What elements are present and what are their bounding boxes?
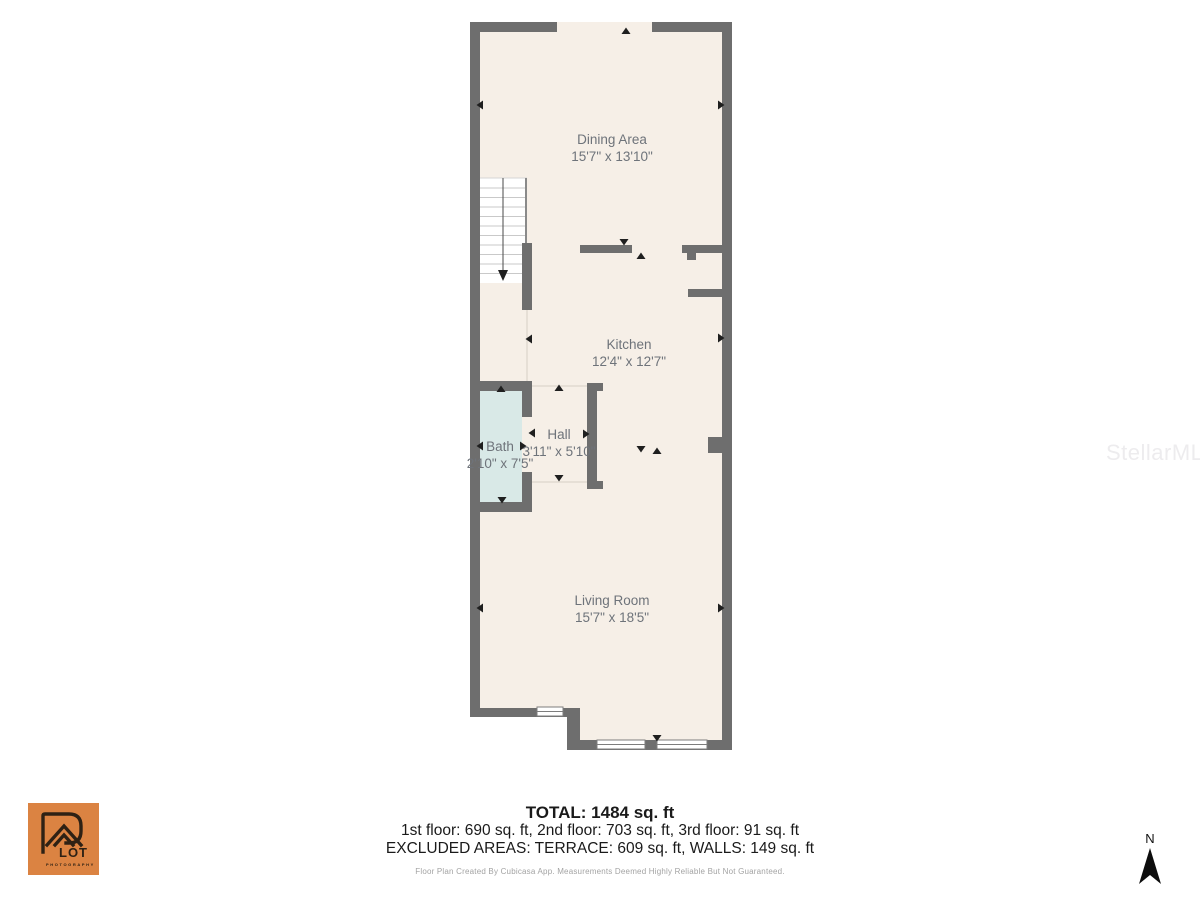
floorplan-page: Dining Area 15'7" x 13'10" Kitchen 12'4"… [0, 0, 1200, 900]
window [597, 740, 645, 749]
plot-photography-logo: LOT PHOTOGRAPHY [28, 803, 99, 875]
wall-layer [0, 0, 1200, 900]
north-label: N [1128, 832, 1172, 846]
interior-walls [470, 243, 722, 512]
north-compass: N [1128, 832, 1172, 891]
north-arrow-icon [1128, 846, 1172, 886]
disclaimer-text: Floor Plan Created By Cubicasa App. Meas… [0, 867, 1200, 876]
stellar-mls-watermark: StellarMLS [1106, 440, 1200, 466]
logo-subtitle-text: PHOTOGRAPHY [46, 862, 95, 867]
room-boundary-lines [527, 310, 587, 482]
area-summary: TOTAL: 1484 sq. ft 1st floor: 690 sq. ft… [0, 803, 1200, 876]
total-area: TOTAL: 1484 sq. ft [0, 803, 1200, 822]
window [537, 707, 563, 716]
window [657, 740, 707, 749]
excluded-areas: EXCLUDED AREAS: TERRACE: 609 sq. ft, WAL… [0, 840, 1200, 858]
logo-name-text: LOT [59, 845, 88, 860]
floor-areas: 1st floor: 690 sq. ft, 2nd floor: 703 sq… [0, 822, 1200, 840]
windows [537, 707, 707, 749]
floor-plan: Dining Area 15'7" x 13'10" Kitchen 12'4"… [0, 0, 1200, 900]
